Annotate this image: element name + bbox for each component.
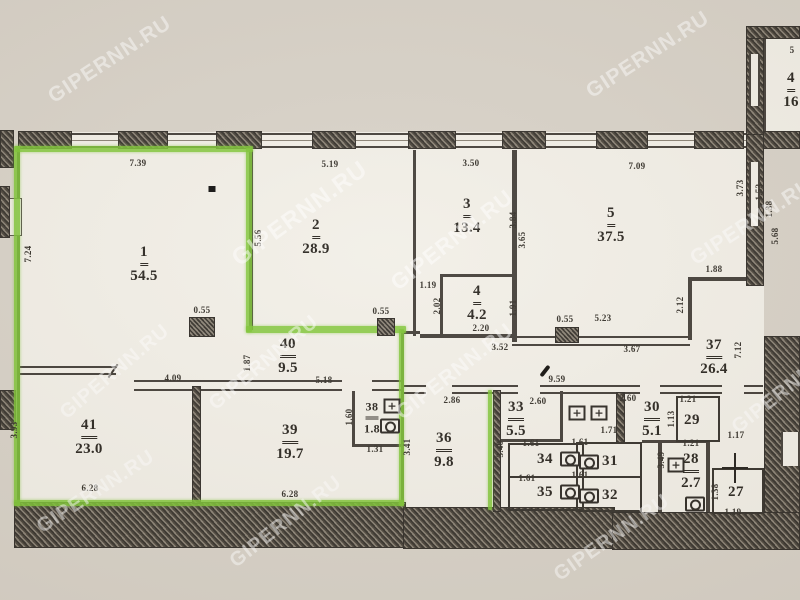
dimension-label: 5.23: [595, 313, 612, 323]
room-label-28-18: 282.7: [680, 450, 702, 492]
room-area: 23.0: [75, 441, 102, 458]
wall-segment: [560, 391, 563, 442]
room-area: 5.5: [505, 423, 527, 440]
room-area: 5.1: [641, 423, 663, 440]
room-label-32-17: 32: [599, 486, 621, 504]
dimension-label: 1.87: [242, 355, 252, 372]
dimension-label: 7.09: [629, 161, 646, 171]
wall-segment: [440, 274, 514, 277]
room-number: 2: [309, 217, 323, 237]
room-label-37-5: 3726.4: [700, 336, 727, 378]
sink-icon: [384, 399, 401, 414]
room-label-33-11: 335.5: [505, 398, 527, 440]
room-number: 35: [534, 484, 556, 501]
highlight-outline-bottom: [14, 500, 404, 506]
floor-plan-photo: 154.5228.9313.444.2537.53726.4409.54123.…: [0, 0, 800, 600]
door-opening: [426, 385, 452, 394]
cross-icon: [722, 453, 748, 483]
wall-segment: [694, 131, 744, 149]
room-number: 33: [505, 399, 527, 419]
room-label-1-0: 154.5: [130, 243, 157, 285]
door-opening: [518, 385, 540, 394]
dimension-label: 3.41: [402, 439, 412, 456]
wall-segment: [413, 150, 416, 336]
toilet-icon: [560, 452, 580, 467]
wall-niche: [781, 432, 800, 466]
wall-segment: [596, 131, 648, 149]
marker-dot-icon: [209, 186, 216, 192]
door-opening: [640, 385, 660, 394]
wall-segment: [408, 131, 456, 149]
wall-segment: [612, 512, 800, 550]
dimension-label: 3.67: [624, 344, 641, 354]
room-number: 31: [599, 453, 621, 470]
room-label-38-9: 381.8: [363, 398, 382, 437]
wall-segment: [0, 186, 10, 238]
dimension-label: 5.19: [322, 159, 339, 169]
dimension-label: 3.65: [517, 232, 527, 249]
highlight-outline-right: [399, 329, 404, 506]
dimension-label: 3.84: [508, 212, 518, 229]
wall-segment: [18, 366, 116, 375]
room-number: 5: [604, 205, 618, 225]
room-label-35-13: 35: [534, 483, 556, 501]
dimension-label: 5.68: [770, 228, 780, 245]
room-label-27-19: 27: [725, 483, 747, 501]
toilet-icon: [579, 455, 599, 470]
room-area: 13.4: [453, 220, 480, 237]
room-label-31-16: 31: [599, 452, 621, 470]
dimension-label: 7.39: [130, 158, 147, 168]
room-number: 4: [470, 283, 484, 303]
room-area: 1.8: [363, 422, 382, 437]
room-number: 1: [137, 244, 151, 264]
dimension-label: 1.61: [519, 473, 536, 483]
room-number: 40: [277, 336, 299, 356]
room-area: 26.4: [700, 361, 727, 378]
dimension-label: 1.21: [680, 394, 697, 404]
dimension-label: 0.55: [557, 314, 574, 324]
room-area: 54.5: [130, 268, 157, 285]
room-area: 37.5: [597, 229, 624, 246]
room-area: 19.7: [276, 446, 303, 463]
room-label-41-7: 4123.0: [75, 416, 102, 458]
room-number: 3: [460, 196, 474, 216]
highlight-outline-room1-right: [246, 148, 252, 332]
highlight-outline-top: [15, 146, 253, 152]
room-label-4-20: 416: [783, 69, 799, 111]
dimension-label: 9.59: [549, 374, 566, 384]
door-opening: [722, 385, 744, 394]
room-label-5-4: 537.5: [597, 204, 624, 246]
room-area: 16: [783, 94, 799, 111]
room-label-2-1: 228.9: [302, 216, 329, 258]
dimension-label: 1.19: [725, 507, 742, 517]
dimension-label: 5.18: [316, 375, 333, 385]
wall-segment: [0, 130, 14, 168]
room-number: 36: [433, 430, 455, 450]
room-area: 28.9: [302, 241, 329, 258]
dimension-label: 2.20: [473, 323, 490, 333]
dimension-label: 4.09: [165, 373, 182, 383]
room-area: 4.2: [467, 307, 487, 324]
wall-segment: [403, 507, 615, 549]
column-icon: [377, 318, 395, 336]
dimension-label: 3.50: [463, 158, 480, 168]
watermark-text: GIPERNN.RU: [44, 11, 176, 108]
wall-segment: [312, 131, 356, 149]
room-number: 27: [725, 484, 747, 501]
dimension-label: 1.71: [601, 425, 618, 435]
room-number: 29: [681, 412, 703, 429]
room-label-34-12: 34: [534, 450, 556, 468]
room-number: 32: [599, 487, 621, 504]
door-opening: [342, 380, 372, 391]
wall-segment: [502, 131, 546, 149]
dimension-label: 1.38: [710, 484, 720, 501]
dimension-label: 7.12: [733, 342, 743, 359]
column-icon: [555, 327, 579, 343]
room-number: 37: [703, 337, 725, 357]
dimension-label: 2.12: [675, 297, 685, 314]
dimension-label: 3.40: [495, 441, 505, 458]
dimension-label: 0.55: [373, 306, 390, 316]
room-label-3-2: 313.4: [453, 195, 480, 237]
wall-segment: [746, 26, 800, 39]
sink-icon: [591, 406, 608, 421]
dimension-label: 1.53: [754, 184, 764, 201]
sink-icon: [569, 406, 586, 421]
room-label-4-3: 44.2: [467, 282, 487, 324]
wall-segment: [706, 440, 710, 512]
dimension-label: 3.93: [9, 422, 19, 439]
toilet-icon: [380, 419, 400, 434]
dimension-label: 1.21: [683, 438, 700, 448]
dimension-label: 2.02: [432, 298, 442, 315]
room-number: 4: [784, 70, 798, 90]
dimension-label: 1.17: [728, 430, 745, 440]
dimension-label: 0.55: [194, 305, 211, 315]
dimension-label: 6.28: [82, 483, 99, 493]
room-number: 38: [363, 400, 382, 418]
dimension-label: 1.31: [367, 444, 384, 454]
dimension-label: 5: [790, 45, 795, 55]
room-number: 30: [641, 399, 663, 419]
dimension-label: 1.13: [666, 411, 676, 428]
wall-segment: [512, 336, 690, 346]
toilet-icon: [579, 489, 599, 504]
room-number: 34: [534, 451, 556, 468]
room-area: 9.5: [277, 360, 299, 377]
dimension-label: 7.24: [23, 246, 33, 263]
dimension-label: 3.49: [656, 452, 666, 469]
room-label-29-15: 29: [681, 411, 703, 429]
dimension-label: 2.60: [530, 396, 547, 406]
dimension-label: 6.28: [282, 489, 299, 499]
highlight-line-36-33: [488, 390, 492, 510]
window-slot: [749, 54, 760, 106]
wall-segment: [192, 386, 201, 504]
dimension-label: 1.91: [508, 300, 518, 317]
room-number: 41: [78, 417, 100, 437]
dimension-label: 3.52: [492, 342, 509, 352]
wall-segment: [688, 280, 692, 340]
toilet-icon: [560, 485, 580, 500]
room-number: 39: [279, 422, 301, 442]
wall-segment: [420, 334, 514, 338]
room-label-36-10: 369.8: [433, 429, 455, 471]
dimension-label: 2.60: [620, 393, 637, 403]
room-label-30-14: 305.1: [641, 398, 663, 440]
room-area: 9.8: [433, 454, 455, 471]
dimension-label: 1.61: [572, 470, 589, 480]
column-icon: [189, 317, 215, 337]
dimension-label: 5.56: [253, 230, 263, 247]
room-label-39-8: 3919.7: [276, 421, 303, 463]
dimension-label: 1.19: [420, 280, 437, 290]
highlight-outline-left: [14, 146, 20, 506]
wall-segment: [764, 336, 800, 514]
room-label-40-6: 409.5: [277, 335, 299, 377]
dimension-label: 3.73: [735, 180, 745, 197]
dimension-label: 2.86: [444, 395, 461, 405]
toilet-icon: [685, 497, 705, 512]
dimension-label: 1.38: [764, 201, 774, 218]
room-number: 28: [680, 451, 702, 471]
dimension-label: 1.60: [344, 409, 354, 426]
wall-segment: [404, 331, 420, 334]
dimension-label: 1.61: [572, 437, 589, 447]
wall-segment: [403, 385, 763, 394]
room-area: 2.7: [680, 475, 702, 492]
dimension-label: 1.88: [706, 264, 723, 274]
watermark-text: GIPERNN.RU: [582, 6, 714, 103]
wall-segment: [14, 502, 406, 548]
wall-segment: [688, 277, 750, 281]
